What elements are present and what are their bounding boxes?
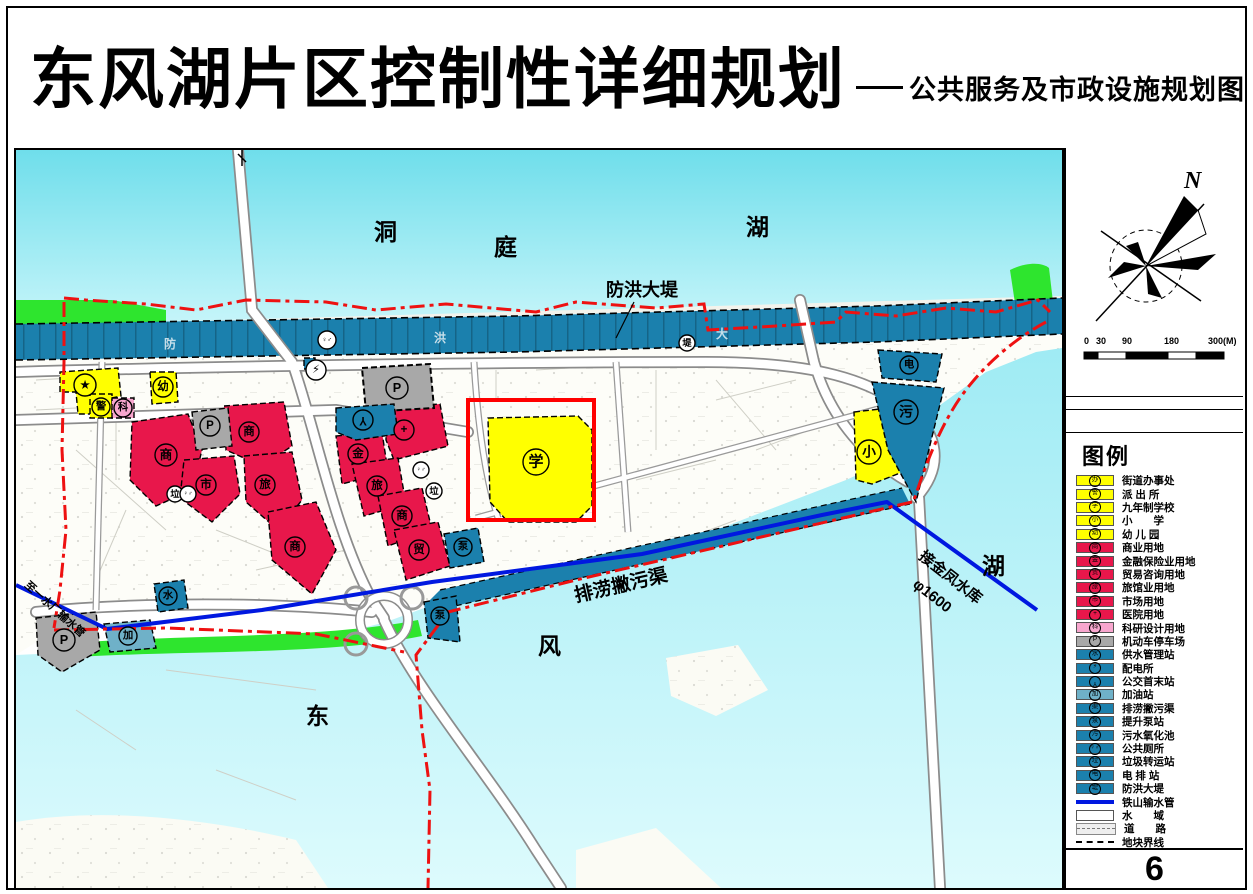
legend-swatch-red: 市: [1076, 596, 1114, 607]
legend-symbol-icon: 电: [1089, 769, 1101, 781]
legend-swatch-yellow: 办: [1076, 475, 1114, 486]
legend-title: 图例: [1082, 439, 1239, 471]
legend-symbol-icon: Y: [1089, 676, 1101, 688]
legend-swatch-lightblue: 加: [1076, 689, 1114, 700]
svg-text:幼: 幼: [157, 379, 169, 393]
svg-text:小: 小: [862, 445, 876, 460]
map-marker: 泵: [431, 607, 449, 625]
map-marker: 学: [523, 449, 549, 475]
legend-swatch-black-dash: [1076, 841, 1114, 843]
legend-swatch-red: 贸: [1076, 569, 1114, 580]
legend-item: 小小 学: [1076, 514, 1239, 527]
map-label: 庭: [494, 234, 517, 260]
legend-item: 电电 排 站: [1076, 769, 1239, 782]
map-marker: ★: [74, 374, 96, 396]
legend-swatch-road: [1076, 823, 1116, 835]
svg-text:科: 科: [118, 401, 129, 414]
legend-swatch-white-box: [1076, 810, 1114, 821]
page-number-box: 6: [1066, 850, 1243, 888]
map-marker: 商: [285, 537, 305, 557]
map-marker: 垃: [426, 483, 442, 499]
svg-text:旅: 旅: [259, 477, 271, 491]
map-marker: 堤: [679, 335, 695, 351]
legend-swatch-blue: 垃: [1076, 756, 1114, 767]
legend-item: 加加油站: [1076, 688, 1239, 701]
divider-band-1: [1066, 397, 1243, 410]
title-dash-line: [856, 86, 903, 89]
legend-symbol-icon: 商: [1089, 542, 1101, 554]
legend-swatch-blue: 电: [1076, 770, 1114, 781]
legend-item: 市市场用地: [1076, 595, 1239, 608]
legend-swatch-yellow: 小: [1076, 515, 1114, 526]
legend-item: 水 域: [1076, 809, 1239, 822]
legend-swatch-blue: Y: [1076, 676, 1114, 687]
map-marker: 金: [348, 444, 368, 464]
map-marker: 泵: [454, 538, 472, 556]
map-label: 洪: [434, 330, 446, 345]
svg-text:商: 商: [160, 447, 173, 462]
legend-item: 垃垃圾转运站: [1076, 755, 1239, 768]
map-label: 东: [306, 703, 329, 729]
legend-item: 商商业用地: [1076, 541, 1239, 554]
map-marker: P: [200, 416, 220, 436]
svg-text:泵: 泵: [458, 541, 469, 553]
legend-swatch-red: 旅: [1076, 582, 1114, 593]
legend-swatch-yellow: 幼: [1076, 529, 1114, 540]
legend-swatch-gray: P: [1076, 636, 1114, 647]
map-label: 风: [538, 633, 561, 659]
legend-symbol-icon: 幼: [1089, 528, 1101, 540]
legend-swatch-yellow: 学: [1076, 502, 1114, 513]
legend-item: 幼幼 儿 园: [1076, 528, 1239, 541]
legend-symbol-icon: 小: [1089, 515, 1101, 527]
svg-text:电: 电: [904, 358, 915, 371]
map-marker: 电: [900, 356, 918, 374]
legend-symbol-icon: 渠: [1089, 702, 1101, 714]
legend-symbol-icon: 市: [1089, 595, 1101, 607]
map-label: 防洪大堤: [606, 279, 679, 300]
legend-swatch-pink: 科: [1076, 622, 1114, 633]
map-marker: P: [53, 629, 75, 651]
legend-swatch-blue: 堤: [1076, 783, 1114, 794]
legend-item: ♀♂公共厕所: [1076, 742, 1239, 755]
svg-text:泵: 泵: [435, 610, 446, 622]
svg-text:学: 学: [529, 453, 544, 471]
map-marker: 污: [894, 400, 918, 424]
map-marker: 商: [239, 422, 259, 442]
map-marker: 商: [392, 506, 412, 526]
legend-item: 水供水管理站: [1076, 648, 1239, 661]
legend-swatch-red: +: [1076, 609, 1114, 620]
legend-item: P机动车停车场: [1076, 635, 1239, 648]
legend-swatch-blue: ⚡: [1076, 663, 1114, 674]
map-marker: 水: [159, 587, 177, 605]
page-subtitle: 公共服务及市政设施规划图: [909, 68, 1245, 107]
svg-text:商: 商: [289, 539, 301, 553]
svg-text:垃: 垃: [429, 485, 439, 496]
map-marker: 加: [119, 627, 137, 645]
map-marker: 贸: [409, 540, 429, 560]
map-canvas[interactable]: 洞庭湖防洪大堤排涝撇污渠东风湖接金凤水库φ1600至一水厂输水管防洪大 ★警科幼…: [14, 148, 1064, 890]
legend-symbol-icon: 办: [1089, 475, 1101, 487]
map-label: 大: [716, 326, 728, 341]
legend-item: 污污水氧化池: [1076, 728, 1239, 741]
map-marker: 警: [92, 398, 110, 416]
legend-item: +医院用地: [1076, 608, 1239, 621]
legend-symbol-icon: 水: [1089, 649, 1101, 661]
legend-item: Y公交首末站: [1076, 675, 1239, 688]
legend-item: 堤防洪大堤: [1076, 782, 1239, 795]
legend-swatch-blue-line: [1076, 800, 1114, 804]
svg-text:★: ★: [79, 378, 90, 392]
legend-item: 金金融保险业用地: [1076, 554, 1239, 567]
legend-item: 铁山输水管: [1076, 795, 1239, 808]
legend-swatch-red: 商: [1076, 542, 1114, 553]
svg-text:Y: Y: [359, 414, 367, 426]
legend-symbol-icon: ⚡: [1089, 662, 1101, 674]
legend-swatch-red: 金: [1076, 556, 1114, 567]
divider-band-2: [1066, 410, 1243, 433]
map-marker: 市: [196, 475, 216, 495]
legend-item: 科科研设计用地: [1076, 621, 1239, 634]
svg-text:♀♂: ♀♂: [184, 491, 193, 497]
legend-swatch-blue: 污: [1076, 730, 1114, 741]
legend-swatch-blue: 水: [1076, 649, 1114, 660]
title-bar: 东风湖片区控制性详细规划 公共服务及市政设施规划图: [8, 8, 1245, 140]
map-marker: P: [386, 377, 408, 399]
map-marker: ♀♂: [318, 331, 336, 349]
svg-text:堤: 堤: [682, 338, 692, 348]
scale-bar: [1084, 352, 1224, 359]
svg-text:♀♂: ♀♂: [322, 337, 332, 344]
svg-text:污: 污: [899, 404, 913, 420]
legend-symbol-icon: 贸: [1089, 568, 1101, 580]
map-marker: 旅: [367, 476, 387, 496]
map-marker: ♀♂: [413, 462, 429, 478]
map-marker: 小: [857, 440, 881, 464]
legend-symbol-icon: 警: [1089, 488, 1101, 500]
legend-item: 渠排涝撇污渠: [1076, 702, 1239, 715]
legend-symbol-icon: P: [1089, 635, 1101, 647]
svg-text:市: 市: [200, 477, 212, 491]
map-marker: ♀♂: [180, 486, 196, 502]
svg-text:垃: 垃: [170, 488, 180, 499]
compass-rose: N: [1096, 168, 1216, 321]
legend: 图例 办街道办事处警派 出 所学九年制学校小小 学幼幼 儿 园商商业用地金金融保…: [1066, 433, 1243, 850]
map-marker: 幼: [153, 377, 173, 397]
svg-text:商: 商: [396, 508, 408, 522]
legend-symbol-icon: 污: [1089, 729, 1101, 741]
legend-symbol-icon: 垃: [1089, 756, 1101, 768]
legend-symbol-icon: 泵: [1089, 716, 1101, 728]
map-label: 洞: [374, 219, 397, 245]
svg-text:P: P: [60, 633, 68, 647]
legend-symbol-icon: 堤: [1089, 783, 1101, 795]
svg-text:金: 金: [351, 446, 364, 460]
map-marker: 科: [114, 399, 132, 417]
svg-text:P: P: [206, 420, 214, 432]
map-label: 湖: [982, 553, 1005, 579]
legend-symbol-icon: 金: [1089, 555, 1101, 567]
compass-scale-box: N 0 30 90 180 300(M): [1066, 148, 1243, 397]
legend-item: 旅旅馆业用地: [1076, 581, 1239, 594]
legend-symbol-icon: 旅: [1089, 582, 1101, 594]
legend-symbol-icon: +: [1089, 609, 1101, 621]
map-label: 湖: [746, 214, 769, 240]
legend-item: 学九年制学校: [1076, 501, 1239, 514]
map-marker: 商: [155, 444, 177, 466]
svg-text:贸: 贸: [413, 542, 425, 556]
legend-item: 办街道办事处: [1076, 474, 1239, 487]
page-number: 6: [1145, 850, 1164, 889]
page-title: 东风湖片区控制性详细规划: [30, 26, 846, 122]
sidebar: N 0 30 90 180 300(M) 图例 办: [1064, 148, 1243, 888]
map-marker: +: [394, 420, 414, 440]
legend-swatch-blue: ♀♂: [1076, 743, 1114, 754]
svg-text:水: 水: [163, 589, 174, 602]
svg-text:⚡: ⚡: [312, 364, 320, 376]
planning-map-page: 东风湖片区控制性详细规划 公共服务及市政设施规划图: [0, 0, 1253, 894]
map-marker: Y: [353, 410, 373, 430]
svg-text:P: P: [393, 381, 401, 395]
map-marker: ⚡: [306, 360, 326, 380]
legend-swatch-blue: 渠: [1076, 703, 1114, 714]
legend-symbol-icon: 加: [1089, 689, 1101, 701]
legend-swatch-blue: 泵: [1076, 716, 1114, 727]
svg-text:加: 加: [122, 629, 133, 642]
north-label: N: [1183, 168, 1203, 194]
svg-text:警: 警: [95, 400, 107, 413]
legend-symbol-icon: 科: [1089, 622, 1101, 634]
svg-text:♀♂: ♀♂: [417, 467, 426, 473]
map-label: 防: [164, 336, 176, 351]
map-marker: 旅: [255, 475, 275, 495]
svg-text:旅: 旅: [371, 478, 383, 492]
legend-item: 道 路: [1076, 822, 1239, 835]
legend-symbol-icon: ♀♂: [1089, 743, 1101, 755]
legend-item: 地块界线: [1076, 836, 1239, 849]
svg-text:商: 商: [243, 424, 255, 438]
legend-symbol-icon: 学: [1089, 501, 1101, 513]
legend-item: ⚡配电所: [1076, 661, 1239, 674]
legend-item: 贸贸易咨询用地: [1076, 568, 1239, 581]
legend-item: 泵提升泵站: [1076, 715, 1239, 728]
legend-item: 警派 出 所: [1076, 487, 1239, 500]
legend-swatch-yellow: 警: [1076, 489, 1114, 500]
svg-text:+: +: [401, 424, 408, 436]
